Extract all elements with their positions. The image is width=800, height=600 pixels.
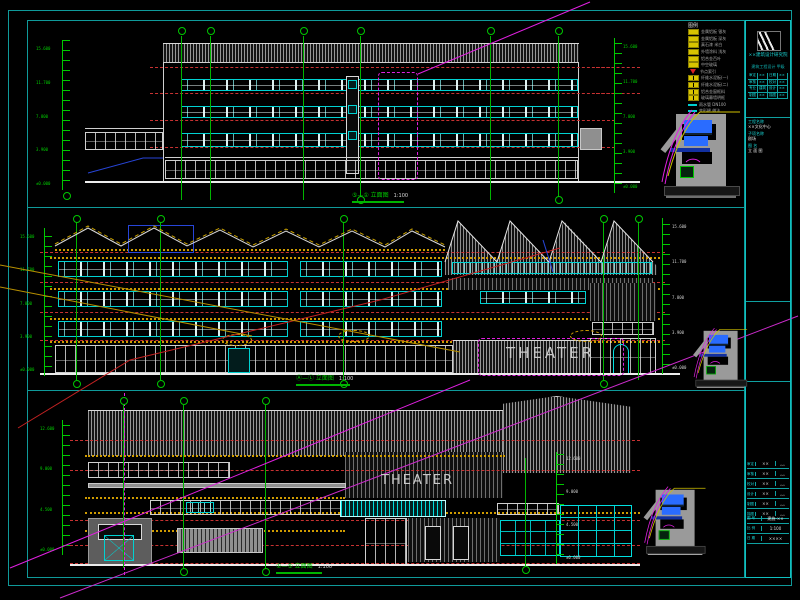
yellow-cloud (570, 330, 602, 342)
grid-bubble (357, 27, 365, 35)
elevation-2-underline (296, 384, 350, 386)
detail-profile-curve (645, 487, 668, 543)
legend-swatch-yy-icon (688, 95, 699, 101)
detail-flashing-curve (649, 488, 705, 538)
detail-flashing-curve (698, 329, 747, 373)
grid-line (638, 222, 639, 380)
title-block: ××建筑设计研究院 建筑工程设计 甲级 审定××日期××审核××校对××专业建筑… (745, 20, 791, 578)
window-band (480, 291, 586, 304)
revision-cloud (378, 72, 418, 180)
detail-arc (710, 361, 720, 363)
grid-line (181, 36, 182, 200)
window-band (300, 261, 442, 277)
grid-bubble (180, 397, 188, 405)
sheet-number-row: 图 号建施-×× (747, 514, 789, 524)
approval-cell: ×× (758, 80, 768, 86)
stair-glazing (365, 518, 407, 565)
level-line (70, 440, 640, 441)
legend-swatch-y-icon (688, 29, 699, 35)
elevation-2-title: Ⓐ—Ⓛ 立面图1:100 (296, 376, 353, 382)
approval-cell: 描图 (768, 93, 778, 99)
signature-cell: ﹏ (776, 480, 789, 487)
wall-section-detail (640, 482, 712, 557)
revision-cloud-line (124, 393, 125, 575)
elevation-2-label: Ⓐ—Ⓛ 立面图 (296, 375, 334, 382)
window-band (58, 291, 288, 307)
detail-arc (686, 159, 700, 162)
grid-line (303, 36, 304, 200)
upper-wall-hatch (88, 410, 504, 456)
cell-value: 剧场 (748, 136, 788, 141)
legend-label: 铝合金窗框料 (701, 90, 725, 94)
grid-line (490, 36, 491, 200)
approval-cell: 专业 (748, 86, 758, 92)
approval-cell: 建筑 (758, 86, 768, 92)
detail-arc (663, 525, 674, 527)
dim-ladder-right (556, 452, 564, 564)
facade-right-edge (578, 62, 579, 182)
sill-dotted-line (50, 318, 660, 320)
approval-cell: ×× (778, 93, 788, 99)
cad-canvas[interactable]: 15.60011.7007.8003.900±0.00015.60011.700… (0, 0, 800, 600)
grid-bubble (207, 27, 215, 35)
grid-line (183, 405, 184, 568)
signature-cell: 校对 (747, 482, 756, 486)
company-logo-icon (757, 31, 781, 51)
project-cell: 图 名立 面 图 (746, 142, 790, 154)
signature-row: 制图××﹏ (747, 499, 789, 509)
curtain-wall-band (340, 500, 446, 517)
sill-line (165, 157, 578, 158)
grid-bubble (487, 27, 495, 35)
legend-swatch-red-icon (690, 69, 696, 74)
ground-storefront (55, 345, 453, 373)
window-band (300, 291, 442, 307)
detail-profile-curve (694, 328, 714, 377)
sheet-value: 1:100 (762, 526, 789, 531)
elevation-1-title: ⑤—① 立面图1:100 (352, 193, 408, 199)
sheet-value: 建施-×× (762, 516, 789, 522)
legend-label: 金属铝板 深灰 (701, 37, 726, 41)
parapet-hatch (163, 43, 579, 62)
sill-dotted-line (85, 455, 505, 457)
window-band (58, 261, 288, 277)
legend-swatch-yy-icon (688, 89, 699, 95)
legend-swatch-yy-icon (688, 82, 699, 88)
grid-bubble (157, 215, 165, 223)
signature-cell: ﹏ (776, 500, 789, 507)
legend-label: 节点索引 (700, 70, 716, 74)
legend-item: 真石漆 米白 (688, 42, 746, 49)
legend-item: 金属铝板 银灰 (688, 29, 746, 36)
elevation-1-scale: 1:100 (394, 193, 408, 199)
signature-cell: ×× (756, 481, 776, 486)
approval-cell: 审定 (748, 73, 758, 79)
sheet-number-table: 图 号建施-××比 例1:100日 期×××× (747, 514, 789, 544)
sheet-key: 图 号 (747, 516, 762, 521)
wing-roof-line (85, 128, 163, 129)
level-line (150, 67, 615, 68)
window-band-white (497, 503, 559, 515)
window-band (58, 321, 288, 337)
braced-panel (104, 535, 134, 561)
grid-bubble (63, 192, 71, 200)
approval-cell: 日期 (768, 73, 778, 79)
grid-line (360, 36, 361, 200)
signature-row: 设计××﹏ (747, 489, 789, 499)
levels-left-3: 12.6009.0004.500±0.000 (40, 426, 54, 552)
approval-cell: 制图 (748, 93, 758, 99)
curtain-wall (500, 520, 560, 556)
entry-door (228, 348, 250, 373)
right-wing-hatch (590, 283, 656, 321)
grid-line (160, 222, 161, 380)
signature-cell: ﹏ (776, 470, 789, 477)
elevation-2-scale: 1:100 (339, 376, 353, 382)
right-wing (580, 128, 602, 150)
sheet-key: 日 期 (747, 536, 762, 541)
grid-bubble (555, 196, 563, 204)
legend-label: 玻璃幕墙明框 (701, 96, 725, 100)
project-cells: 工程名称××文化中心子项名称剧场图 名立 面 图 (746, 117, 790, 154)
door (453, 526, 469, 560)
grid-bubble (180, 568, 188, 576)
grid-bubble (157, 380, 165, 388)
blue-reference-box (128, 225, 194, 253)
levels-right-3: 12.6009.0004.500±0.000 (566, 456, 580, 560)
panel-divider-1 (27, 207, 745, 208)
grid-bubble (600, 380, 608, 388)
sill-dotted-line (50, 257, 660, 259)
signature-cell: ﹏ (776, 490, 789, 497)
elevation-3-title: ①—⑤ 立面图1:100 (276, 564, 332, 570)
legend-swatch-y-icon (688, 42, 699, 48)
grid-bubble (262, 568, 270, 576)
signature-cell: 审核 (747, 472, 756, 476)
legend-swatch-y-icon (688, 56, 699, 62)
elevation-3-scale: 1:100 (318, 564, 332, 570)
approval-cell: ×× (778, 80, 788, 86)
grid-line (343, 222, 344, 380)
ground-line (70, 564, 640, 566)
dim-ladder-left (62, 420, 70, 555)
company-certificate: 建筑工程设计 甲级 (746, 64, 790, 69)
sheet-key: 比 例 (747, 526, 762, 531)
door (425, 526, 441, 560)
grid-bubble (178, 27, 186, 35)
legend-label: 铝合金百叶 (701, 57, 721, 61)
legend-swatch-yy-icon (688, 75, 699, 81)
approval-cell: ×× (778, 86, 788, 92)
left-wing-windows (85, 132, 163, 150)
detail-profile-curve (662, 110, 692, 182)
levels-left-1: 15.60011.7007.8003.900±0.000 (36, 46, 50, 186)
panel-divider-2 (27, 390, 745, 391)
signature-row: 审核××﹏ (747, 469, 789, 479)
grid-line (123, 405, 124, 568)
approval-grid: 审定××日期××审核××校对××专业建筑设计××制图××描图×× (748, 73, 788, 99)
grid-line (76, 222, 77, 380)
theater-sign-bottom: THEATER (381, 473, 454, 488)
wall-section-detail (690, 324, 753, 389)
grid-bubble (522, 566, 530, 574)
ground-line (85, 181, 640, 183)
signature-cell: 审定 (747, 462, 756, 466)
detail-flashing-curve (668, 112, 740, 176)
signature-cell: ﹏ (776, 460, 789, 467)
legend-item: 节点索引 (688, 69, 746, 76)
legend-label: 金属铝板 银灰 (701, 30, 726, 34)
dim-ladder-left (62, 40, 70, 190)
louver-wall (177, 528, 263, 553)
legend-item: 纤维水泥板(二) (688, 82, 746, 89)
facade-left-edge (163, 62, 164, 182)
theater-sign-middle: THEATER (506, 344, 595, 362)
sheet-number-row: 比 例1:100 (747, 524, 789, 534)
legend-swatch-y-icon (688, 62, 699, 68)
blank-section-1 (746, 301, 790, 302)
signature-cell: ×× (756, 461, 776, 466)
legend-item: 中空玻璃 (688, 62, 746, 69)
sheet-number-row: 日 期×××× (747, 534, 789, 544)
company-name: ××建筑设计研究院 (746, 53, 790, 58)
approval-cell: ×× (758, 73, 768, 79)
ground-storefront (165, 160, 578, 179)
sawtooth-window-band (452, 262, 652, 274)
legend-swatch-y-icon (688, 36, 699, 42)
elevation-3-label: ①—⑤ 立面图 (276, 563, 313, 570)
grid-bubble (73, 215, 81, 223)
cell-value: 立 面 图 (748, 148, 788, 153)
elevation-1-label: ⑤—① 立面图 (352, 192, 389, 199)
blank-section-2 (746, 381, 790, 382)
right-wing-windows (592, 322, 654, 335)
levels-right-2: 15.60011.7007.8003.900±0.000 (672, 224, 686, 370)
signature-row: 校对××﹏ (747, 479, 789, 489)
facade-top-line (163, 62, 579, 63)
sheet-value: ×××× (762, 536, 789, 541)
grid-bubble (120, 397, 128, 405)
legend-item: 金属铝板 深灰 (688, 36, 746, 43)
levels-right-1: 15.60011.7007.8003.900±0.000 (623, 44, 637, 189)
legend-item: 外墙涂料 浅灰 (688, 49, 746, 56)
legend-item: 纤维水泥板(一) (688, 75, 746, 82)
eave-dotted-line (55, 249, 445, 251)
legend-label: 真石漆 米白 (701, 43, 722, 47)
grid-bubble (635, 215, 643, 223)
legend-label: 中空玻璃 (701, 63, 717, 67)
signature-cell: ×× (756, 501, 776, 506)
window-accent (186, 502, 214, 513)
project-cell: 工程名称××文化中心 (746, 118, 790, 130)
signature-cell: 设计 (747, 492, 756, 496)
legend-item: 铝合金窗框料 (688, 88, 746, 95)
level-line (40, 312, 665, 313)
grid-line (210, 36, 211, 200)
grid-bubble (300, 27, 308, 35)
legend-label: 纤维水泥板(一) (701, 76, 728, 80)
approval-cell: 设计 (768, 86, 778, 92)
legend-label: 外墙涂料 浅灰 (701, 50, 726, 54)
grid-line (525, 458, 526, 566)
legend-item: 玻璃幕墙明框 (688, 95, 746, 102)
dim-ladder-left (44, 228, 52, 376)
yellow-cloud (338, 330, 370, 342)
signature-table: 审定××﹏审核××﹏校对××﹏设计××﹏制图××﹏描图××﹏ (747, 459, 789, 519)
approval-cell: 校对 (768, 80, 778, 86)
dim-ladder-right (662, 218, 670, 374)
approval-row: 制图××描图×× (748, 93, 788, 100)
signature-row: 审定××﹏ (747, 459, 789, 469)
approval-cell: ×× (758, 93, 768, 99)
grid-bubble (555, 27, 563, 35)
signature-cell: ×× (756, 491, 776, 496)
stair-window (348, 131, 357, 140)
stair-window (348, 105, 357, 114)
grid-bubble (73, 380, 81, 388)
legend-item: 铝合金百叶 (688, 55, 746, 62)
window-band (300, 321, 442, 337)
elevation-1-underline (352, 201, 404, 203)
yellow-cloud (222, 334, 252, 346)
canopy-slab (88, 483, 346, 488)
window-band-white (88, 462, 230, 478)
project-cell: 子项名称剧场 (746, 130, 790, 142)
approval-cell: ×× (778, 73, 788, 79)
signature-cell: ×× (756, 471, 776, 476)
approval-cell: 审核 (748, 80, 758, 86)
grid-bubble (262, 397, 270, 405)
grid-bubble (600, 215, 608, 223)
window-band-white (150, 500, 346, 515)
dim-ladder-right (614, 38, 622, 193)
grid-bubble (340, 215, 348, 223)
elevation-3-underline (276, 572, 322, 574)
cell-value: ××文化中心 (748, 124, 788, 129)
grid-line (265, 405, 266, 568)
legend-label: 纤维水泥板(二) (701, 83, 728, 87)
grid-line (558, 36, 559, 200)
stair-window (348, 80, 357, 89)
levels-left-2: 15.60011.7007.8003.900±0.000 (20, 234, 34, 372)
wall-section-detail (656, 104, 748, 200)
signature-cell: 制图 (747, 502, 756, 506)
legend-swatch-y-icon (688, 49, 699, 55)
